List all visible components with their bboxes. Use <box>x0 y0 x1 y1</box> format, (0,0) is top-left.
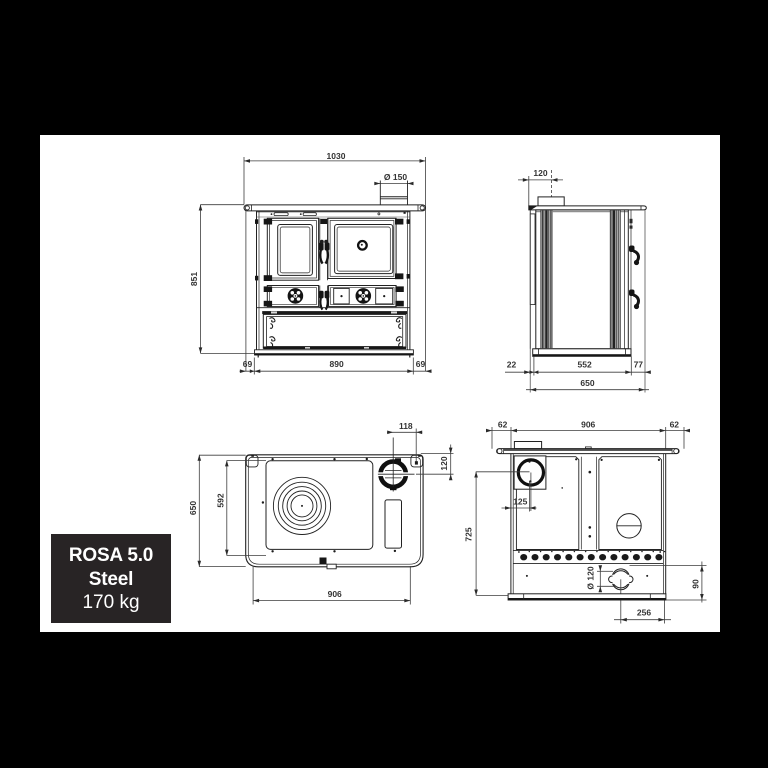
svg-text:725: 725 <box>464 527 474 541</box>
svg-text:650: 650 <box>188 501 198 515</box>
svg-text:22: 22 <box>507 359 517 369</box>
svg-text:120: 120 <box>439 456 449 470</box>
svg-text:120: 120 <box>533 168 547 178</box>
svg-text:906: 906 <box>328 589 342 599</box>
svg-text:90: 90 <box>690 579 700 589</box>
svg-text:Ø 150: Ø 150 <box>384 172 407 182</box>
svg-text:1030: 1030 <box>327 151 346 161</box>
svg-text:890: 890 <box>330 359 344 369</box>
svg-text:Ø 120: Ø 120 <box>586 566 596 589</box>
svg-text:552: 552 <box>578 359 592 369</box>
svg-text:125: 125 <box>513 497 527 507</box>
svg-text:906: 906 <box>581 419 595 429</box>
svg-text:77: 77 <box>634 359 644 369</box>
svg-text:69: 69 <box>416 359 426 369</box>
svg-text:592: 592 <box>215 493 225 507</box>
svg-text:69: 69 <box>243 359 253 369</box>
svg-text:650: 650 <box>580 378 594 388</box>
svg-text:851: 851 <box>189 272 199 286</box>
svg-text:118: 118 <box>399 421 413 431</box>
svg-text:256: 256 <box>637 608 651 618</box>
svg-text:62: 62 <box>670 419 680 429</box>
svg-text:62: 62 <box>498 419 508 429</box>
